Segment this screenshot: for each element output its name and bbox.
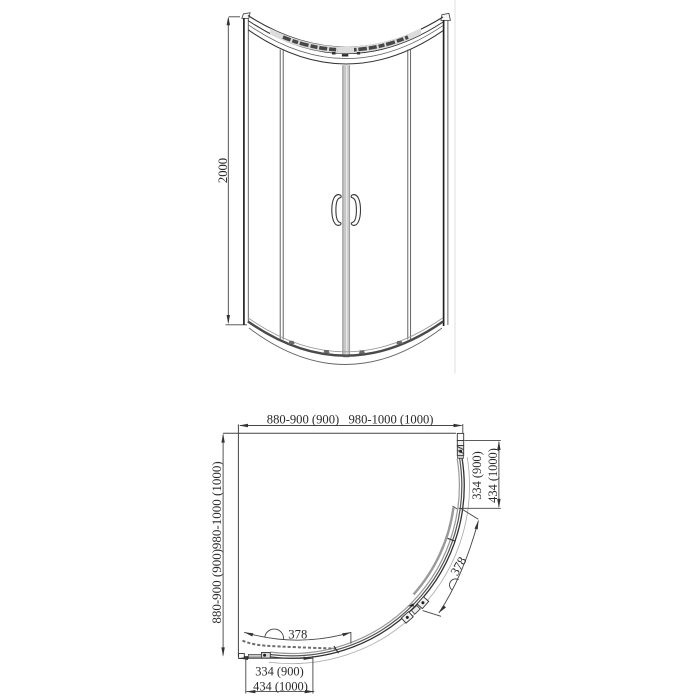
svg-text:980-1000 (1000): 980-1000 (1000) xyxy=(349,413,434,427)
svg-text:980-1000 (1000): 980-1000 (1000) xyxy=(209,461,224,549)
svg-text:434 (1000): 434 (1000) xyxy=(486,448,500,503)
svg-text:378: 378 xyxy=(288,628,307,642)
svg-text:2000: 2000 xyxy=(216,158,230,183)
svg-text:434 (1000): 434 (1000) xyxy=(253,680,308,694)
svg-text:880-900 (900): 880-900 (900) xyxy=(267,413,339,427)
svg-text:334 (900): 334 (900) xyxy=(255,665,304,679)
svg-text:334 (900): 334 (900) xyxy=(470,451,484,500)
svg-text:880-900 (900): 880-900 (900) xyxy=(209,549,224,624)
